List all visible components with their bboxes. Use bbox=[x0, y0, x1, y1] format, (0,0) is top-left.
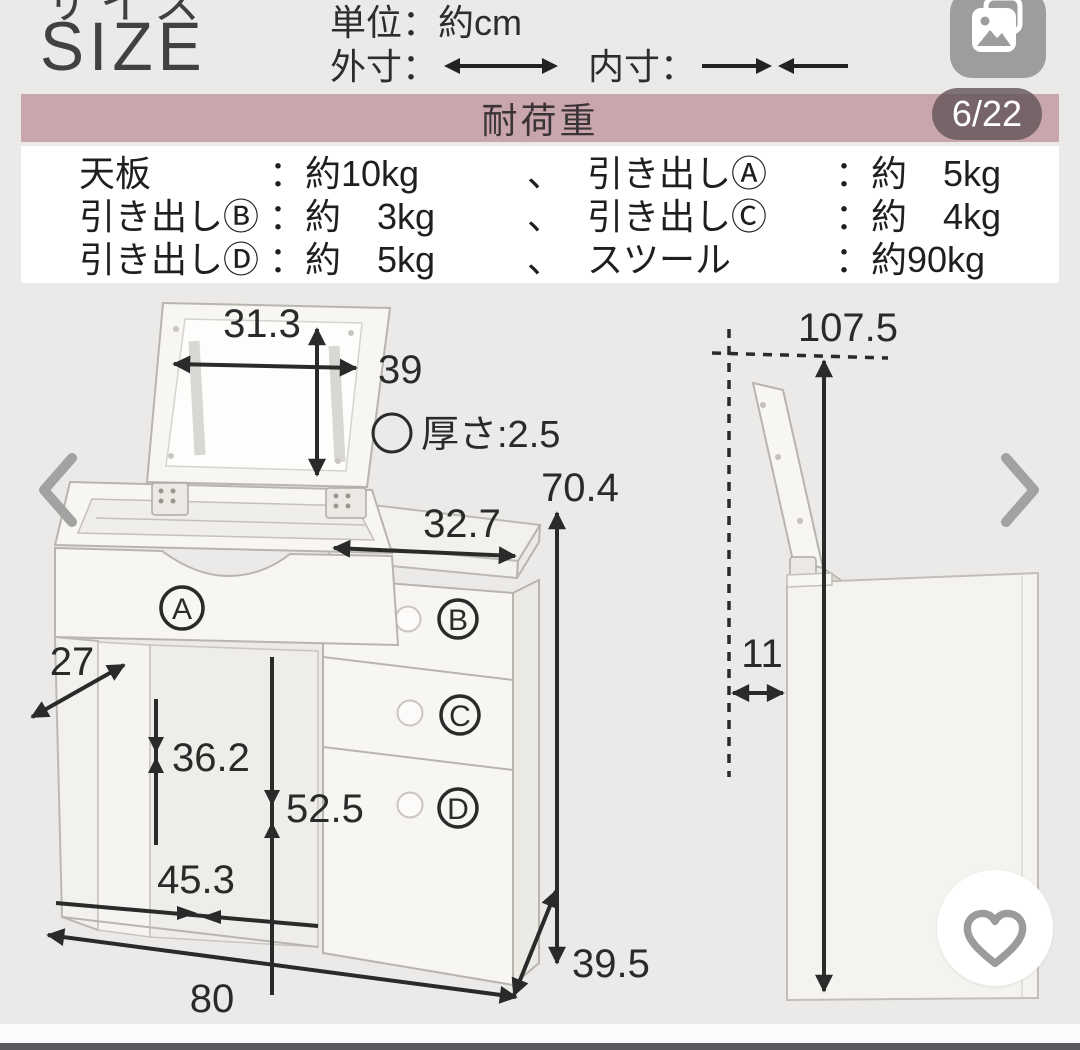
drawer-a-label: A bbox=[172, 593, 192, 626]
thickness-marker-circle bbox=[373, 414, 411, 452]
separator: 、 bbox=[527, 238, 587, 281]
load-item-label: 天板 bbox=[79, 152, 269, 195]
bottom-spacer bbox=[0, 1024, 1080, 1043]
inner-dimension-arrow-icon bbox=[700, 53, 850, 79]
dim-thickness: 厚さ:2.5 bbox=[421, 414, 560, 456]
load-item-value: ：約 4kg bbox=[835, 195, 1001, 238]
dim-top-depth: 32.7 bbox=[423, 502, 501, 546]
dim-lid-overhang: 11 bbox=[741, 632, 783, 676]
load-item-value: ：約 3kg bbox=[269, 195, 527, 238]
drawer-c-label: C bbox=[449, 700, 471, 733]
dim-mirror-width: 31.3 bbox=[223, 302, 301, 346]
drawer-d-knob bbox=[398, 793, 423, 818]
load-capacity-row: 引き出しⒷ：約 3kg、引き出しⒸ：約 4kg bbox=[79, 195, 1059, 238]
chevron-right-icon bbox=[992, 448, 1048, 532]
load-item-label: 引き出しⒹ bbox=[79, 238, 269, 281]
inner-dimension-label: 内寸： bbox=[588, 38, 696, 90]
dim-mirror-height: 39 bbox=[378, 348, 423, 392]
load-capacity-row: 天板：約10kg、引き出しⒶ：約 5kg bbox=[79, 152, 1059, 195]
page-title-size: SIZE bbox=[40, 6, 207, 85]
chevron-left-icon bbox=[30, 448, 86, 532]
side-view-lid bbox=[753, 383, 823, 568]
heart-icon bbox=[961, 908, 1029, 972]
load-capacity-banner: 耐荷重 bbox=[21, 94, 1059, 142]
dimension-legend: 外寸： 内寸： bbox=[330, 38, 856, 90]
next-image-button[interactable] bbox=[992, 448, 1048, 532]
load-item-label: 引き出しⒸ bbox=[587, 195, 835, 238]
separator: 、 bbox=[527, 152, 587, 195]
photo-stack-icon bbox=[950, 0, 1046, 78]
product-image-viewer: サイズ SIZE 単位：約cm 外寸： 内寸： 耐荷重 6/22 bbox=[0, 0, 1080, 1050]
dim-side-panel-depth: 27 bbox=[50, 640, 95, 684]
load-item-value: ：約10kg bbox=[269, 152, 527, 195]
previous-image-button[interactable] bbox=[30, 448, 86, 532]
load-capacity-table: 天板：約10kg、引き出しⒶ：約 5kg 引き出しⒷ：約 3kg、引き出しⒸ：約… bbox=[21, 146, 1059, 283]
load-item-value: ：約 5kg bbox=[269, 238, 527, 281]
dim-knee-width: 45.3 bbox=[157, 858, 235, 902]
page-indicator-badge: 6/22 bbox=[932, 88, 1042, 140]
dim-open-lid-height: 107.5 bbox=[798, 306, 898, 350]
load-capacity-title: 耐荷重 bbox=[481, 92, 598, 144]
load-item-value: ：約 5kg bbox=[835, 152, 1001, 195]
drawer-b-label: B bbox=[448, 604, 468, 637]
photo-gallery-button[interactable] bbox=[950, 0, 1046, 78]
dim-total-height: 70.4 bbox=[541, 466, 619, 510]
load-item-label: スツール bbox=[587, 238, 835, 281]
dim-under-top-height: 52.5 bbox=[286, 787, 364, 831]
hinge-left bbox=[152, 483, 188, 515]
outer-dimension-label: 外寸： bbox=[330, 38, 438, 90]
outer-dimension-arrow-icon bbox=[442, 53, 560, 79]
hinge-right bbox=[326, 488, 366, 518]
separator: 、 bbox=[527, 195, 587, 238]
load-item-label: 引き出しⒷ bbox=[79, 195, 269, 238]
drawer-d-label: D bbox=[447, 793, 469, 826]
drawer-c-knob bbox=[398, 701, 423, 726]
load-item-label: 引き出しⒶ bbox=[587, 152, 835, 195]
dim-total-width: 80 bbox=[190, 977, 235, 1021]
dim-total-depth: 39.5 bbox=[572, 942, 650, 986]
load-item-value: ：約90kg bbox=[835, 238, 985, 281]
dim-knee-height: 36.2 bbox=[172, 736, 250, 780]
bottom-bar bbox=[0, 1043, 1080, 1050]
load-capacity-row: 引き出しⒹ：約 5kg、スツール：約90kg bbox=[79, 238, 1059, 281]
favorite-button[interactable] bbox=[937, 870, 1053, 986]
size-diagram: 31.3 39 厚さ:2.5 32.7 70.4 27 36.2 52.5 45… bbox=[0, 285, 1080, 1025]
drawer-b-knob bbox=[396, 607, 421, 632]
